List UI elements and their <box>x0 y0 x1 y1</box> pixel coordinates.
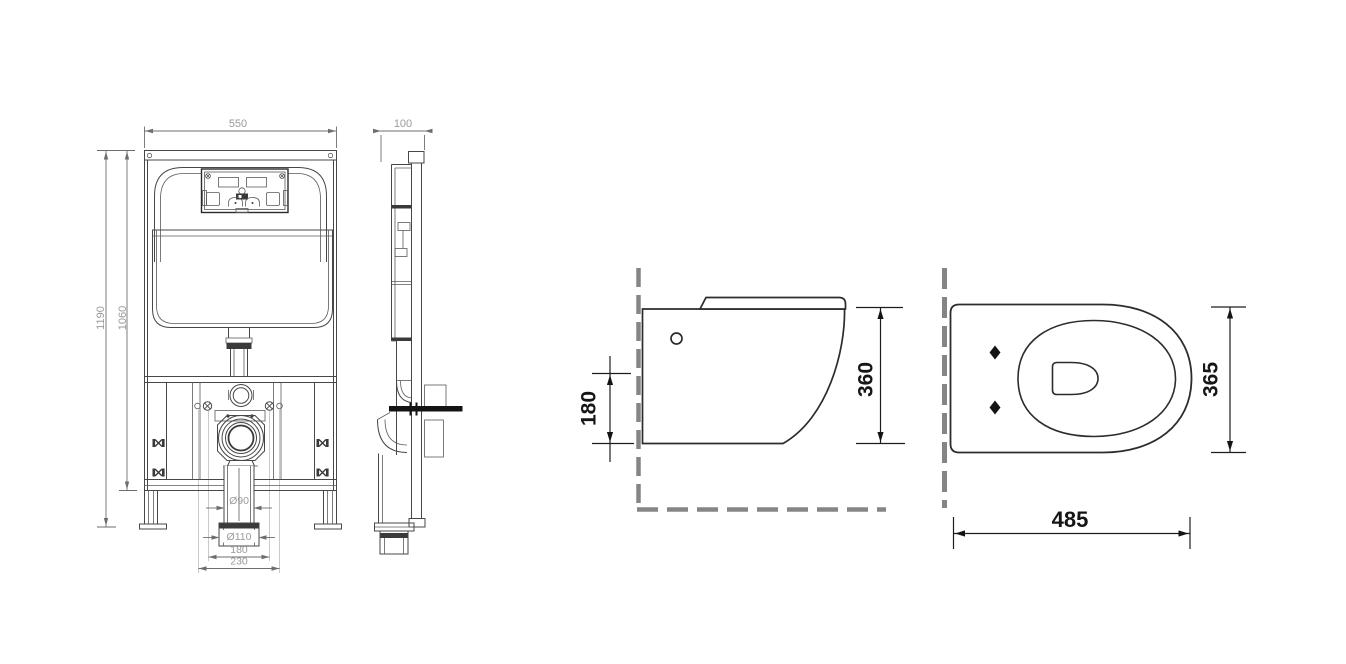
bolt-symbol-icon <box>317 469 329 477</box>
dim-label-bolt-outer: 230 <box>230 556 248 568</box>
bolt-symbol-icon <box>153 469 165 477</box>
valve-block <box>236 194 248 200</box>
dim-label-height-total: 1190 <box>95 306 107 330</box>
toilet-body-profile <box>643 309 845 444</box>
dim-bolt-spacing-outer-230: 230 <box>199 556 280 571</box>
cistern-frame-front-view: 550 1190 1060 Ø90 <box>95 118 342 573</box>
cistern-frame-side-view: 100 <box>373 118 463 554</box>
inlet-elbow <box>397 381 412 403</box>
dim-label-bolt-inner: 180 <box>230 544 248 556</box>
screw-hole-icon <box>328 153 332 157</box>
flush-access-panel <box>202 169 289 213</box>
hanger-hook-icon <box>395 223 410 257</box>
frame-side-structure <box>375 152 463 555</box>
wall-bracket-plate <box>425 385 447 407</box>
screw-hole-icon <box>147 153 151 157</box>
wall-bracket-plate <box>425 420 444 457</box>
dim-label-frame-width: 550 <box>229 118 247 130</box>
dim-body-height-360: 360 <box>855 308 906 444</box>
dim-outlet-collar-diameter: Ø110 <box>203 530 275 543</box>
dim-frame-height-total-1190: 1190 <box>95 151 135 528</box>
water-inlet-connection <box>229 385 254 407</box>
technical-drawing-page: 550 1190 1060 Ø90 <box>0 0 1346 664</box>
dim-frame-height-1060: 1060 <box>117 151 137 491</box>
dim-label-height-frame: 1060 <box>117 306 129 330</box>
seat-lid-profile <box>700 298 846 310</box>
bolt-symbol-icon <box>153 439 165 447</box>
dim-label-toilet-depth: 485 <box>1052 507 1089 532</box>
outlet-elbow <box>378 413 408 453</box>
toilet-top-view: 365 485 <box>945 268 1247 549</box>
toilet-outline-top <box>951 305 1192 453</box>
cistern-tank <box>153 230 333 376</box>
toilet-side-view: 180 360 <box>578 268 906 510</box>
flush-pipe <box>226 328 252 377</box>
dim-label-outlet-pipe: Ø90 <box>229 495 249 507</box>
dim-frame-width-550: 550 <box>145 118 337 148</box>
bolt-symbol-icon <box>317 439 329 447</box>
dim-toilet-depth-485: 485 <box>954 507 1191 549</box>
dim-label-mounting-height: 180 <box>578 391 601 426</box>
dim-mounting-height-180: 180 <box>578 356 635 462</box>
dim-label-frame-depth: 100 <box>394 118 412 130</box>
dim-toilet-width-365: 365 <box>1200 307 1247 453</box>
dim-label-toilet-width: 365 <box>1200 362 1223 397</box>
waste-outlet-assembly <box>218 416 265 467</box>
dim-label-outlet-collar: Ø110 <box>227 531 252 543</box>
drawing-canvas: 550 1190 1060 Ø90 <box>0 0 1346 664</box>
wall-anchor-bar <box>389 403 463 416</box>
dim-label-body-height: 360 <box>855 362 878 397</box>
